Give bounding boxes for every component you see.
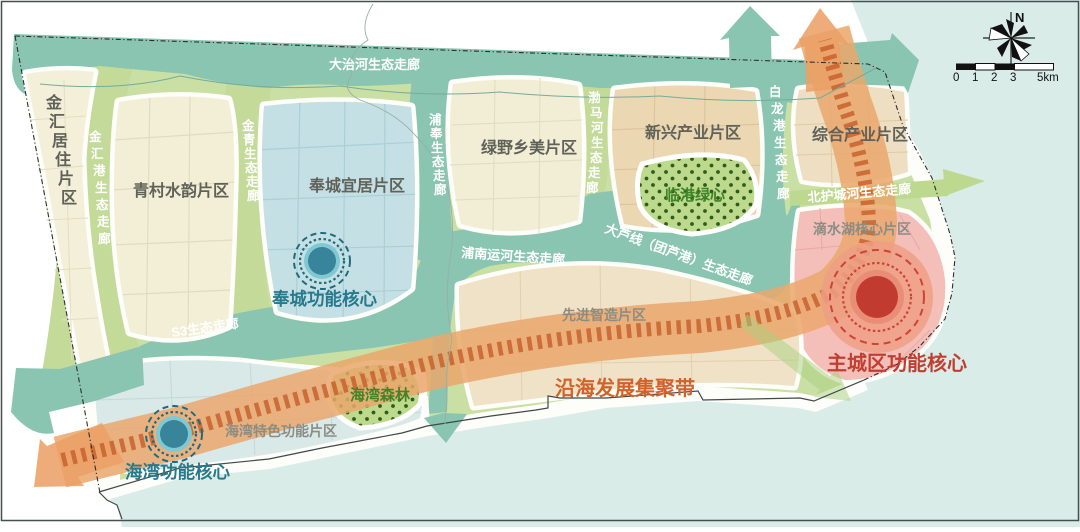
svg-text:态: 态	[432, 154, 445, 169]
svg-text:廊: 廊	[434, 182, 447, 197]
svg-text:2: 2	[991, 72, 997, 84]
svg-text:新兴产业片区: 新兴产业片区	[645, 123, 741, 142]
svg-text:滴水湖核心片区: 滴水湖核心片区	[813, 221, 911, 237]
svg-text:金: 金	[45, 93, 63, 112]
svg-text:奉城宜居片区: 奉城宜居片区	[308, 176, 405, 195]
svg-text:龙: 龙	[770, 101, 784, 116]
svg-text:走: 走	[776, 169, 789, 184]
svg-text:临港绿心: 临港绿心	[665, 186, 725, 204]
svg-text:先进智造片区: 先进智造片区	[562, 307, 646, 323]
svg-text:港: 港	[93, 163, 106, 178]
svg-text:海湾森林: 海湾森林	[350, 386, 411, 404]
svg-text:态: 态	[590, 150, 603, 165]
svg-text:金: 金	[241, 118, 255, 133]
svg-text:汇: 汇	[49, 113, 65, 131]
svg-text:区: 区	[61, 189, 77, 207]
svg-text:渤: 渤	[588, 90, 601, 105]
svg-text:1: 1	[972, 72, 978, 84]
svg-text:沿海发展集聚带: 沿海发展集聚带	[555, 376, 695, 400]
svg-text:走: 走	[433, 168, 446, 183]
svg-text:白: 白	[769, 84, 782, 99]
svg-text:综合产业片区: 综合产业片区	[812, 125, 908, 144]
svg-text:金: 金	[88, 129, 102, 144]
svg-text:走: 走	[97, 214, 110, 229]
svg-text:浦: 浦	[429, 112, 442, 127]
svg-text:青: 青	[243, 132, 256, 147]
svg-text:生: 生	[591, 135, 604, 150]
svg-text:走: 走	[588, 165, 601, 180]
svg-text:住: 住	[55, 150, 71, 169]
svg-text:生: 生	[244, 146, 257, 161]
svg-text:0: 0	[953, 72, 959, 84]
svg-text:生: 生	[95, 180, 108, 195]
svg-text:生: 生	[774, 135, 787, 150]
svg-text:廊: 廊	[98, 231, 111, 246]
svg-text:态: 态	[775, 152, 788, 167]
svg-text:走: 走	[246, 174, 259, 189]
svg-text:居: 居	[52, 132, 68, 150]
svg-text:态: 态	[96, 197, 109, 212]
svg-text:海湾功能核心: 海湾功能核心	[125, 462, 230, 482]
svg-text:N: N	[1015, 10, 1024, 25]
svg-text:5km: 5km	[1037, 72, 1059, 84]
svg-text:奉城功能核心: 奉城功能核心	[271, 289, 377, 309]
svg-text:廊: 廊	[586, 180, 599, 195]
svg-text:廊: 廊	[777, 186, 790, 201]
svg-text:奉: 奉	[429, 126, 443, 141]
svg-text:态: 态	[245, 160, 258, 175]
svg-text:大治河生态走廊: 大治河生态走廊	[329, 57, 420, 72]
svg-text:海湾特色功能片区: 海湾特色功能片区	[225, 423, 337, 439]
svg-text:3: 3	[1010, 72, 1016, 84]
svg-text:绿野乡美片区: 绿野乡美片区	[481, 138, 577, 157]
svg-text:港: 港	[773, 118, 786, 133]
svg-text:青村水韵片区: 青村水韵片区	[133, 181, 229, 200]
svg-text:汇: 汇	[91, 147, 104, 161]
svg-text:片: 片	[58, 169, 74, 188]
svg-text:生: 生	[431, 140, 444, 155]
svg-text:河: 河	[591, 120, 604, 135]
svg-text:马: 马	[590, 106, 603, 120]
svg-text:廊: 廊	[247, 188, 260, 203]
svg-text:主城区功能核心: 主城区功能核心	[827, 351, 967, 375]
